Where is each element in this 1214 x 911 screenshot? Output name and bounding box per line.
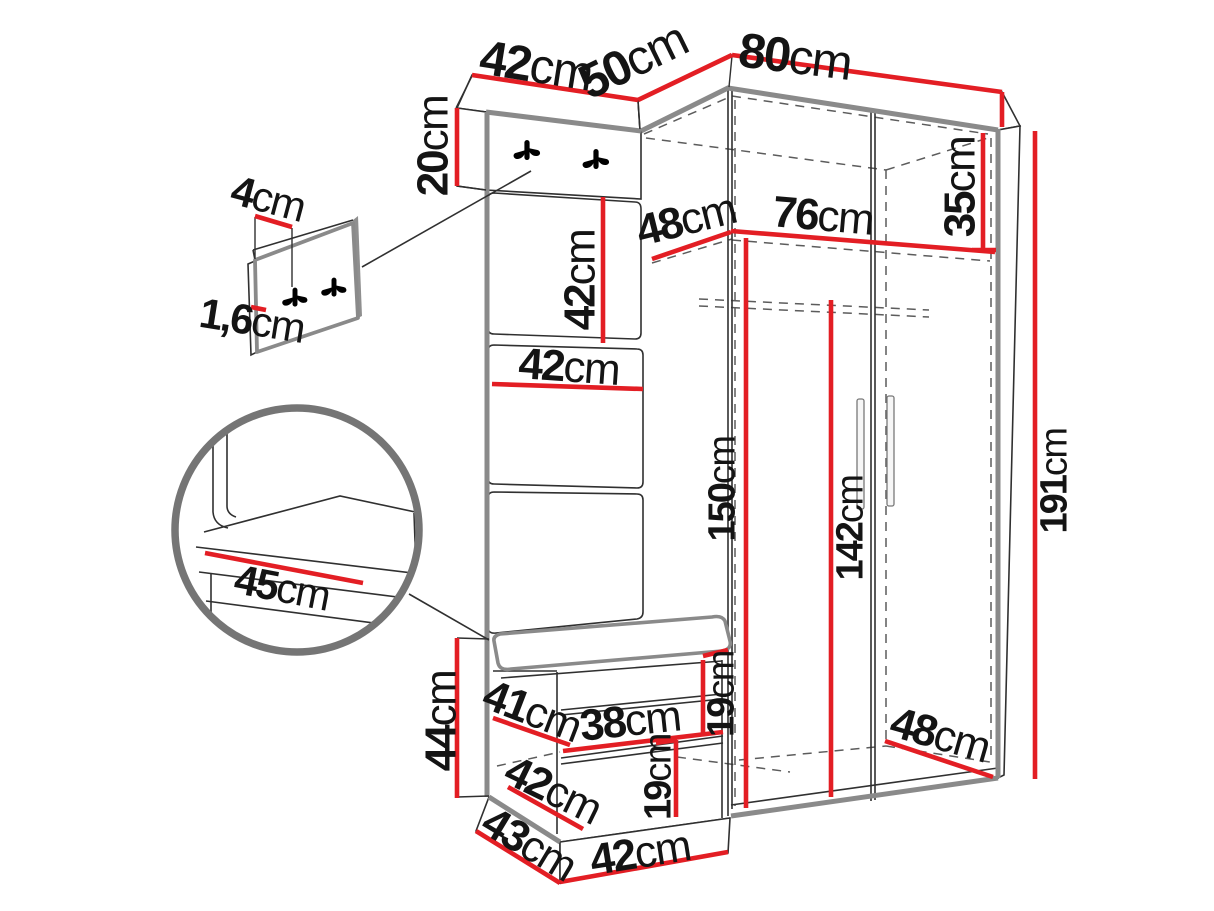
dimension-value: 191 [1034, 474, 1076, 533]
dimension-value: 35 [936, 191, 985, 237]
dimension-label-mini-panel-hook-offset: 4cm [226, 166, 310, 231]
dimension-label-total-height: 191cm [1034, 428, 1076, 533]
dimension-value: 44 [417, 724, 466, 771]
dimension-unit: cm [409, 96, 458, 152]
dimension-value: 150 [702, 483, 744, 541]
dimension-unit: cm [830, 475, 872, 523]
dimension-value: 19 [701, 698, 743, 737]
g-shape [409, 594, 489, 640]
dimension-unit: cm [786, 30, 854, 91]
dimension-unit: cm [248, 297, 308, 352]
dimension-unit: cm [417, 671, 466, 727]
dimension-unit: cm [928, 710, 995, 772]
floor-hidden-edge [677, 757, 790, 772]
callout-line [409, 594, 489, 640]
dimension-unit: cm [936, 137, 985, 193]
dimension-value: 1,6 [196, 289, 256, 344]
dimension-value: 20 [409, 151, 458, 196]
dimension-label-bench-lower-compartment: 19cm [638, 734, 680, 820]
dimension-value: 38 [577, 697, 628, 751]
dimension-label-panel-tile-height: 42cm [556, 230, 605, 331]
panel-cushion-tile-3 [488, 492, 643, 633]
dimension-label-rod-height: 142cm [830, 475, 872, 580]
dimension-label-panel-tile-width: 42cm [517, 339, 621, 395]
dimension-unit: cm [638, 734, 680, 782]
dimension-unit: cm [556, 230, 605, 286]
dimension-unit: cm [816, 191, 876, 245]
dimension-value: 76 [771, 187, 821, 240]
dimension-label-hook-board-height: 20cm [409, 96, 458, 197]
dimension-unit: cm [702, 436, 744, 484]
dimension-unit: cm [1034, 428, 1076, 476]
dimension-value: 80 [736, 23, 793, 83]
dimension-label-shelf-width: 76cm [771, 187, 875, 245]
dimension-value: 19 [638, 781, 680, 820]
panel-side-strip [457, 108, 486, 190]
door-handle-right [887, 396, 894, 506]
dimension-label-base-width: 42cm [586, 821, 693, 885]
dimension-label-shelf-depth: 48cm [631, 184, 740, 256]
path-shape [646, 138, 886, 170]
dimension-unit: cm [675, 184, 741, 245]
wardrobe-bottom-edge [731, 778, 998, 816]
dimension-label-bench-upper-compartment: 19cm [701, 651, 743, 737]
dimension-label-bench-depth: 41cm [476, 670, 587, 752]
dimension-unit: cm [701, 651, 743, 699]
dimension-label-top-compartment-height: 35cm [936, 137, 985, 238]
wardrobe-right-side-face [998, 126, 1020, 778]
dimension-unit: cm [273, 563, 334, 619]
dimension-label-interior-height: 150cm [702, 436, 744, 541]
dimension-unit: cm [631, 821, 694, 878]
corner-detail-circle [175, 398, 489, 652]
dimension-value: 42 [586, 830, 639, 886]
dimension-value: 42 [517, 339, 566, 391]
dimension-value: 142 [830, 522, 872, 580]
path-shape [457, 796, 489, 797]
dimension-label-bench-height: 44cm [417, 671, 466, 772]
dimension-unit: cm [247, 172, 310, 231]
dimension-unit: cm [562, 342, 621, 395]
furniture-dimension-diagram: 42cm 50cm 80cm 20cm 4cm 1,6cm 35cm 48cm … [0, 0, 1214, 911]
diagram-canvas: 42cm 50cm 80cm 20cm 4cm 1,6cm 35cm 48cm … [0, 0, 1214, 911]
dimension-value: 42 [476, 31, 535, 92]
path-shape [457, 638, 489, 639]
dimension-value: 42 [556, 285, 605, 330]
floor-hidden-edge [739, 746, 886, 760]
